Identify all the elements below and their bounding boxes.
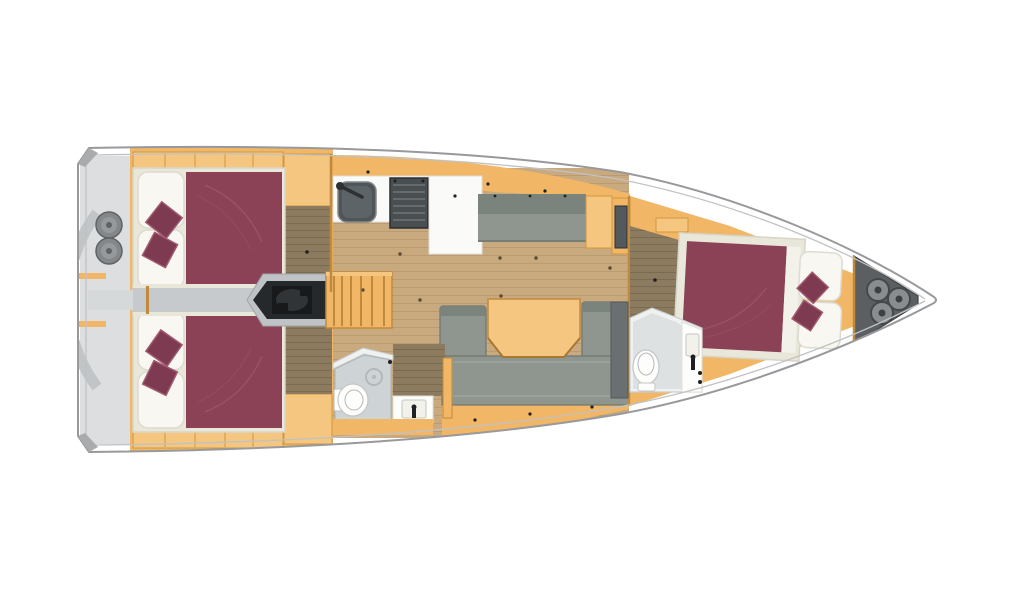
aft-cabin-starboard	[133, 306, 332, 448]
side-cabinet	[586, 196, 612, 248]
straight-settee	[478, 194, 586, 242]
nav-locker	[612, 198, 630, 254]
dinette-table	[488, 299, 580, 357]
aft-corridor	[133, 288, 260, 312]
bedspread	[186, 310, 282, 428]
washbasin-vanity	[393, 396, 433, 423]
deck-hatch-icon	[867, 279, 889, 301]
yacht-floor-plan	[0, 0, 1024, 600]
aft-cabin-port	[133, 152, 332, 294]
bed-side-rail	[133, 312, 260, 316]
head-partition	[443, 358, 452, 418]
engine-compartment	[253, 281, 326, 319]
deck-hatch-icon	[871, 302, 893, 324]
bedspread	[186, 172, 282, 290]
transom-trim-top	[76, 273, 106, 279]
bed-side-rail	[133, 284, 260, 288]
chart-counter	[429, 176, 482, 254]
shower-column	[611, 302, 628, 398]
transom-trim-bottom	[76, 321, 106, 327]
overhead-cabinet	[656, 218, 688, 232]
winch-icon	[96, 212, 122, 238]
head-plinth	[333, 419, 433, 435]
wardrobe	[284, 394, 332, 444]
washbasin-vanity	[682, 322, 702, 392]
door-hinge-dot	[388, 360, 392, 364]
companionway-steps	[326, 272, 392, 328]
stove-icon	[390, 178, 428, 228]
winch-icon	[96, 238, 122, 264]
settee-bench	[442, 356, 629, 405]
floor-plan-canvas	[0, 0, 1024, 600]
corridor-transom-end	[88, 290, 135, 310]
floor-fitting	[305, 250, 309, 254]
wardrobe	[284, 154, 332, 206]
faucet-icon	[691, 358, 695, 370]
settee-left-arm-back	[440, 306, 486, 316]
galley-sink	[336, 182, 376, 222]
door-frame	[146, 286, 149, 314]
latch-dot	[453, 194, 456, 197]
toilet-icon	[334, 384, 368, 416]
